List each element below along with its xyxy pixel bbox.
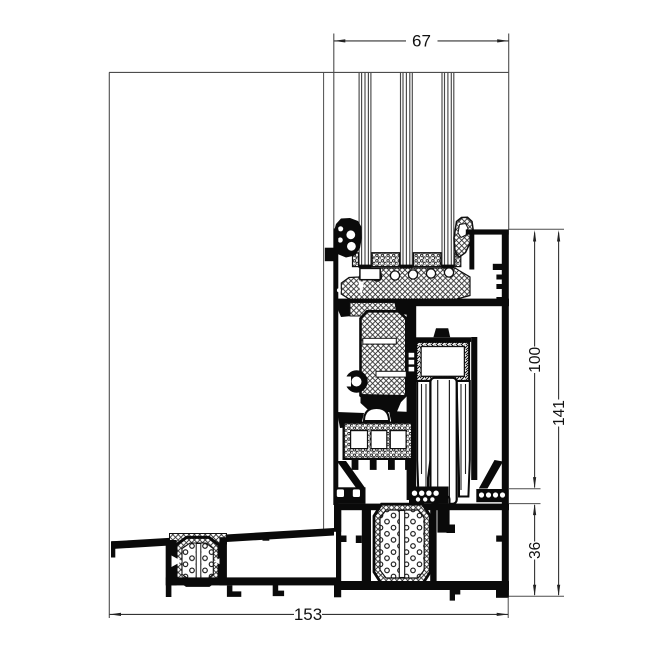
svg-text:67: 67 — [412, 32, 431, 51]
svg-text:36: 36 — [527, 542, 544, 559]
svg-text:141: 141 — [551, 400, 568, 426]
svg-text:153: 153 — [294, 605, 322, 624]
svg-text:100: 100 — [527, 346, 544, 372]
